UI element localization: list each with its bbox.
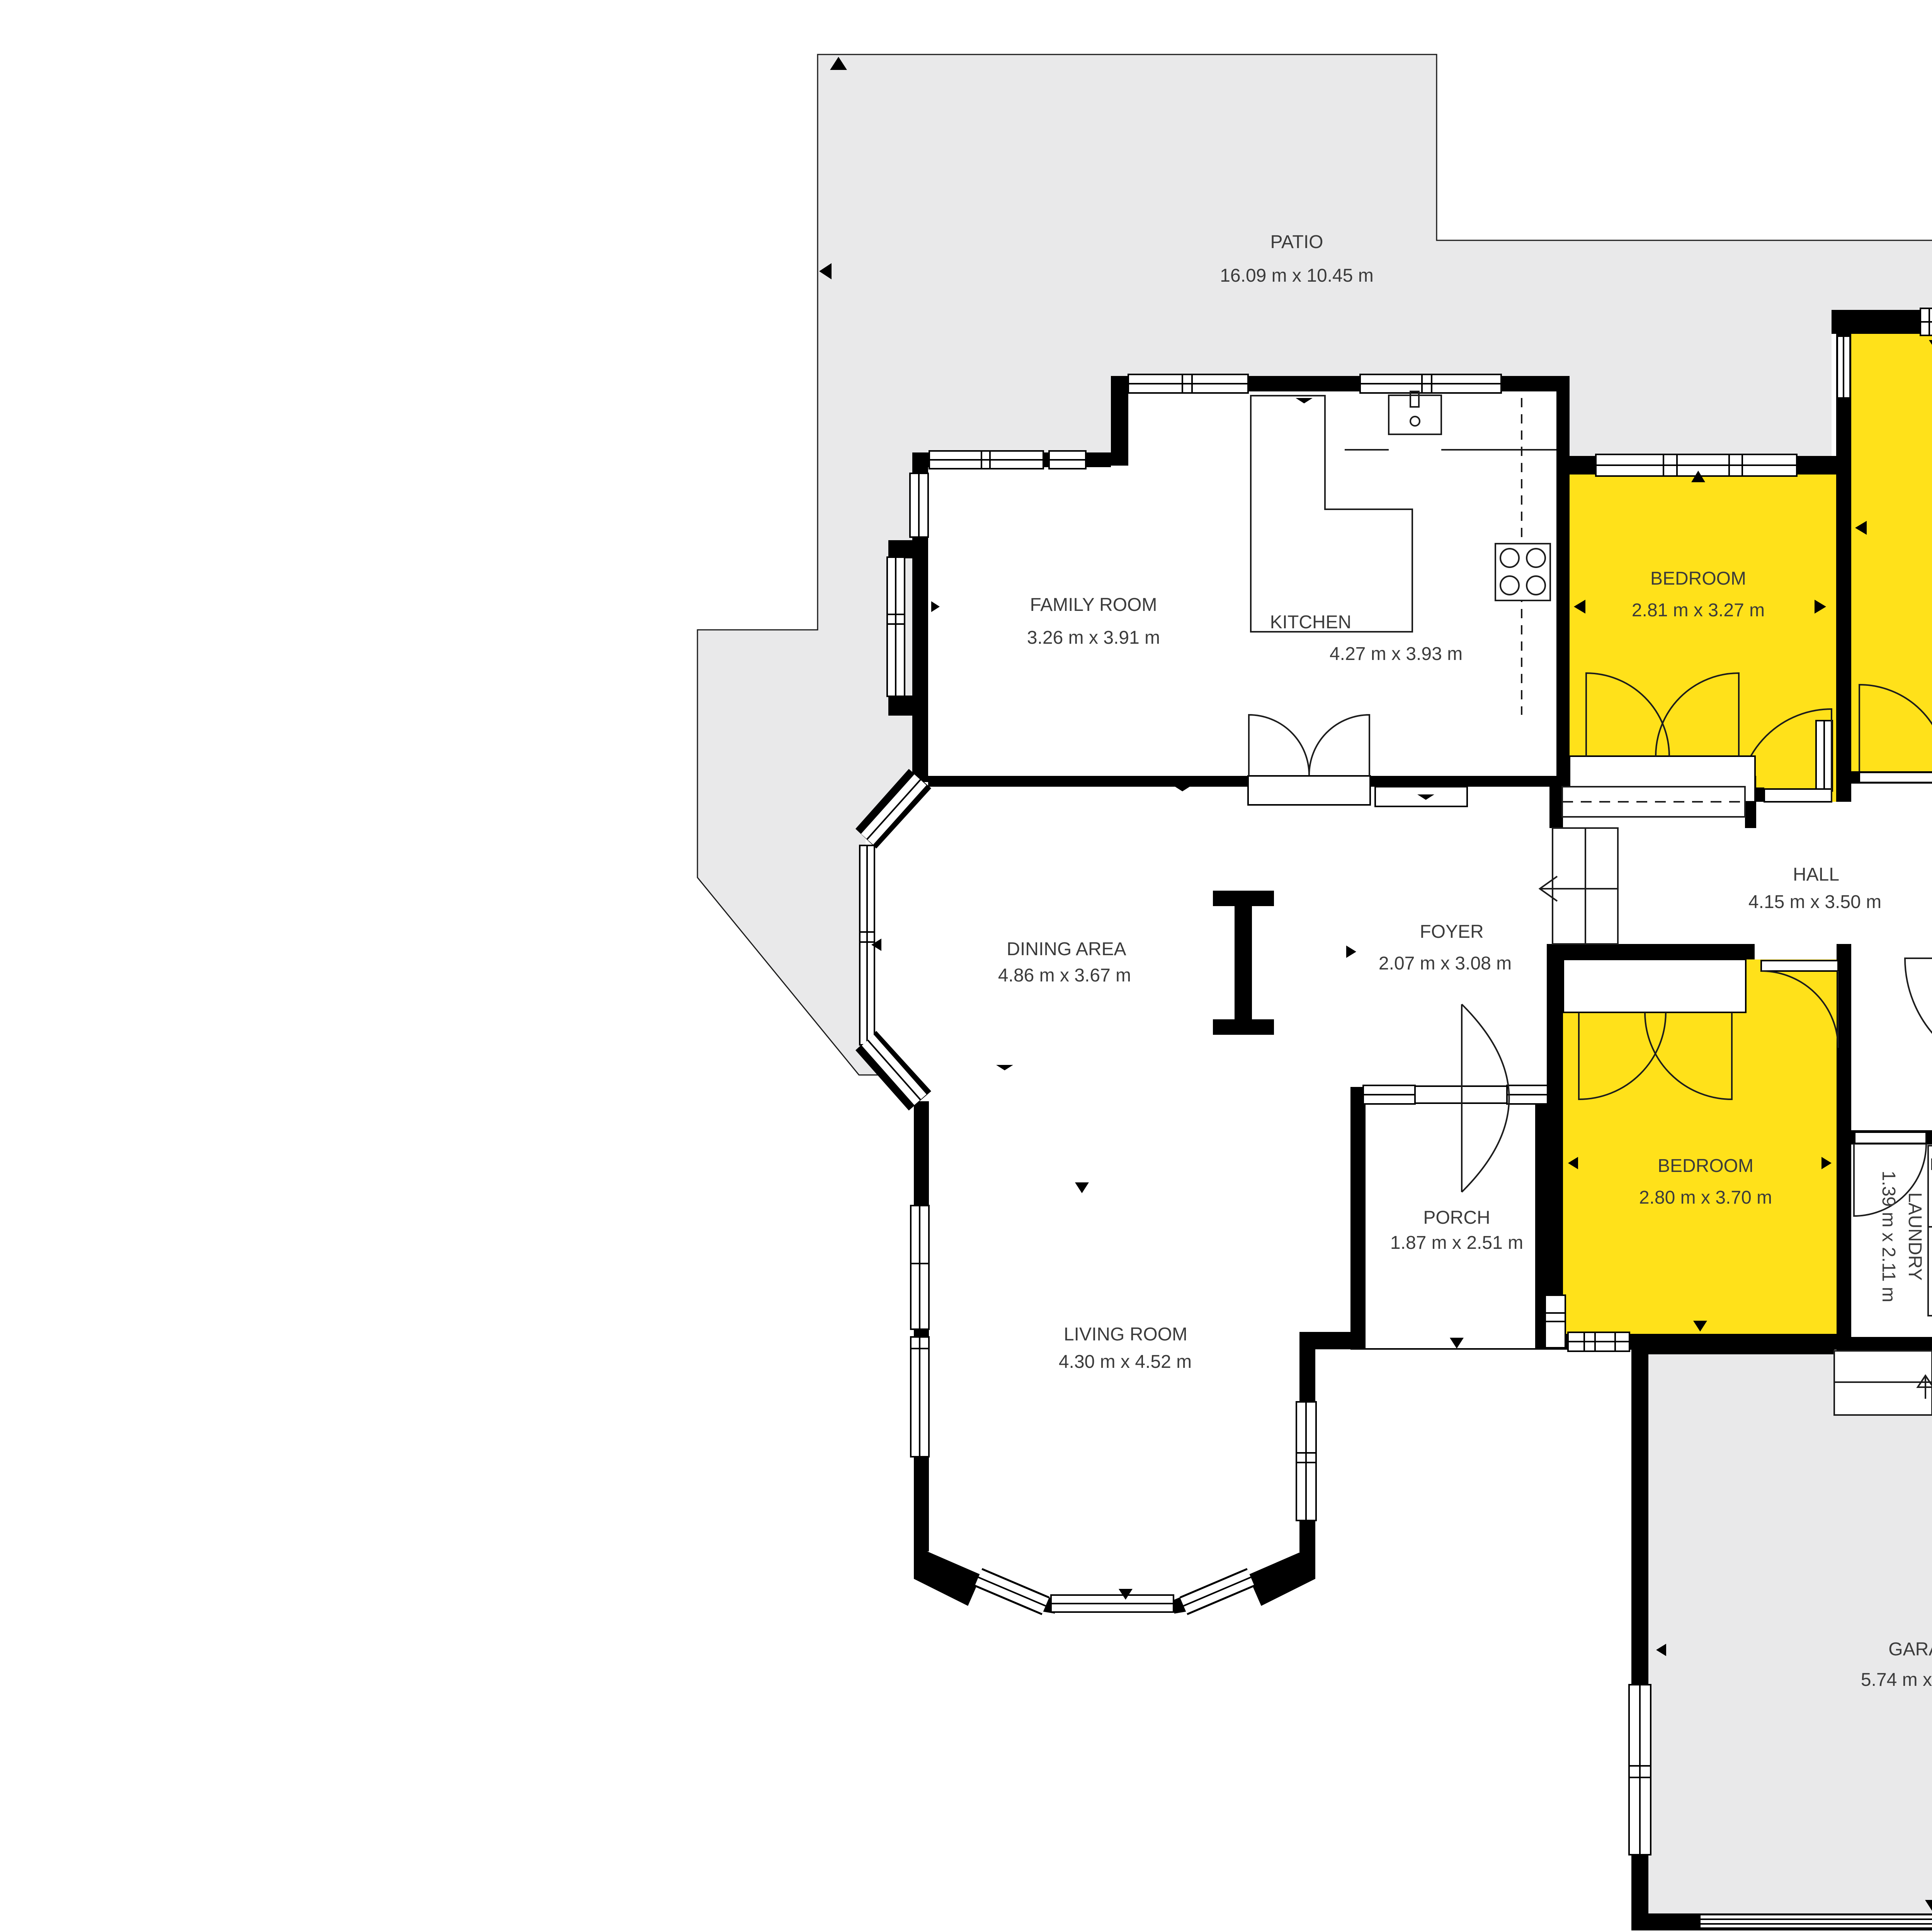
svg-text:4.15 m x 3.50 m: 4.15 m x 3.50 m: [1748, 892, 1881, 912]
svg-text:KITCHEN: KITCHEN: [1270, 612, 1352, 633]
svg-text:2.80 m x 3.70 m: 2.80 m x 3.70 m: [1639, 1187, 1772, 1208]
svg-text:4.86 m x 3.67 m: 4.86 m x 3.67 m: [998, 965, 1131, 986]
svg-text:FOYER: FOYER: [1420, 922, 1483, 942]
svg-text:3.26 m x 3.91 m: 3.26 m x 3.91 m: [1027, 628, 1160, 648]
svg-text:BEDROOM: BEDROOM: [1650, 568, 1746, 589]
svg-text:FAMILY ROOM: FAMILY ROOM: [1030, 595, 1157, 615]
svg-text:4.27 m x 3.93 m: 4.27 m x 3.93 m: [1330, 644, 1463, 664]
svg-text:DINING AREA: DINING AREA: [1007, 939, 1126, 959]
svg-text:5.74 m x 5.78 m: 5.74 m x 5.78 m: [1861, 1670, 1932, 1690]
svg-text:HALL: HALL: [1793, 864, 1839, 885]
svg-text:PATIO: PATIO: [1270, 232, 1323, 252]
svg-text:4.30 m x 4.52 m: 4.30 m x 4.52 m: [1059, 1352, 1192, 1372]
svg-text:2.07 m x 3.08 m: 2.07 m x 3.08 m: [1379, 953, 1512, 974]
svg-text:16.09 m x 10.45 m: 16.09 m x 10.45 m: [1220, 265, 1374, 286]
svg-text:2.81 m x 3.27 m: 2.81 m x 3.27 m: [1632, 600, 1765, 621]
svg-text:1.87 m x 2.51 m: 1.87 m x 2.51 m: [1390, 1233, 1523, 1253]
svg-text:LIVING ROOM: LIVING ROOM: [1064, 1324, 1187, 1345]
svg-text:GARAGE: GARAGE: [1888, 1639, 1932, 1660]
svg-text:BEDROOM: BEDROOM: [1658, 1156, 1753, 1176]
svg-text:PORCH: PORCH: [1423, 1207, 1490, 1228]
svg-text:1.39 m x 2.11 m: 1.39 m x 2.11 m: [1878, 1171, 1899, 1303]
svg-text:LAUNDRY: LAUNDRY: [1905, 1192, 1925, 1281]
